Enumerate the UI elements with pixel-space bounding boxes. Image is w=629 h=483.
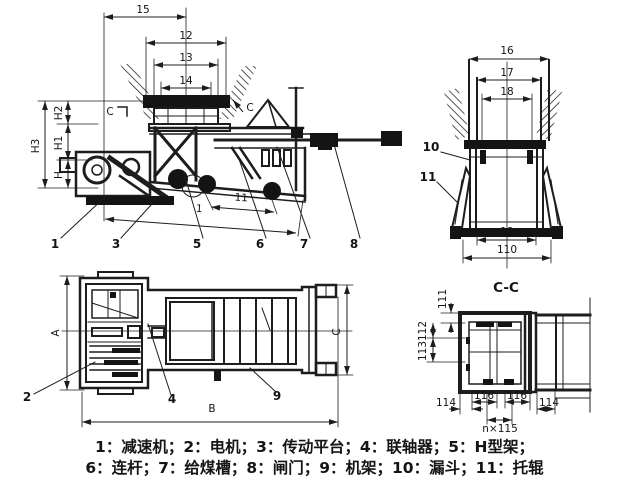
drawing-canvas: 15 12 13 14 xyxy=(0,0,629,483)
part-label-8: 8 xyxy=(350,237,358,251)
part-label-1: 1 xyxy=(51,237,59,251)
dim-label-18: 18 xyxy=(500,86,513,98)
part-label-11: 11 xyxy=(420,170,437,184)
part-label-6: 6 xyxy=(256,237,264,251)
roller xyxy=(263,182,281,200)
dim-label-113: 113 xyxy=(417,341,429,361)
roller xyxy=(198,175,216,193)
dim-label-111: 111 xyxy=(437,289,449,309)
dim-label-116-right: 116 xyxy=(507,390,527,402)
dim-line-11 xyxy=(211,207,274,212)
bunker-hatch-left xyxy=(444,88,470,140)
dim-label-19: 19 xyxy=(500,226,513,238)
bunker-hatch-right xyxy=(536,88,562,140)
dim-label-14: 14 xyxy=(179,75,193,87)
part-label-5: 5 xyxy=(193,237,201,251)
part-label-4: 4 xyxy=(168,392,176,406)
section-mark-right: C xyxy=(246,102,253,114)
dim-label-12: 12 xyxy=(179,30,192,42)
dim-label-110: 110 xyxy=(497,244,517,256)
part-label-2: 2 xyxy=(23,390,31,404)
dim-label-16: 16 xyxy=(500,45,514,57)
dim-label-114-right: 114 xyxy=(539,397,559,409)
drive-block xyxy=(86,284,142,382)
dim-label-H: H xyxy=(53,171,65,179)
section-view-cc: C-C 111 112 113 xyxy=(417,280,590,435)
dim-label-H1: H1 xyxy=(53,136,65,151)
dim-label-116-left: 116 xyxy=(474,390,494,402)
dim-label-l: 1 xyxy=(195,203,203,215)
support-leg-left xyxy=(452,168,470,228)
rod-end xyxy=(381,131,402,146)
dim-label-114-left: 114 xyxy=(436,397,456,409)
dim-label-15: 15 xyxy=(136,4,149,16)
section-title: C-C xyxy=(493,280,519,296)
coupling xyxy=(152,328,164,337)
dim-label-17: 17 xyxy=(500,67,513,79)
end-view: 16 17 18 19 110 xyxy=(420,45,563,268)
gearbox-base xyxy=(86,196,174,205)
legend-line-2: 6：连杆；7：给煤槽；8：闸门；9：机架；10：漏斗；11：托辊 xyxy=(0,458,629,479)
table-top-plate xyxy=(143,95,230,108)
part-label-7: 7 xyxy=(300,237,308,251)
dim-label-C: C xyxy=(331,328,343,335)
parts-legend: 1：减速机；2：电机；3：传动平台；4：联轴器；5：H型架； 6：连杆；7：给煤… xyxy=(0,437,629,478)
trough-plan xyxy=(166,287,309,373)
feeder-engineering-drawing: 15 12 13 14 xyxy=(0,0,629,483)
part-label-10: 10 xyxy=(423,140,440,154)
dim-label-13: 13 xyxy=(179,52,192,64)
dim-label-112: 112 xyxy=(417,321,429,341)
support-leg-right xyxy=(543,168,561,228)
hopper-flange xyxy=(464,140,546,149)
plan-view: A B C 2 4 9 xyxy=(23,272,353,427)
section-mark-left: C xyxy=(106,106,113,118)
part-label-9: 9 xyxy=(273,389,281,403)
dim-label-115: n×115 xyxy=(482,423,518,435)
dim-label-11: 11 xyxy=(234,192,248,205)
dim-label-A: A xyxy=(50,329,62,337)
dim-label-H2: H2 xyxy=(53,106,65,121)
roller xyxy=(168,169,188,189)
drive-shaft-circle xyxy=(84,157,110,183)
side-view: 15 12 13 14 xyxy=(30,4,402,251)
part-label-3: 3 xyxy=(112,237,120,251)
dim-label-H3: H3 xyxy=(30,139,42,154)
legend-line-1: 1：减速机；2：电机；3：传动平台；4：联轴器；5：H型架； xyxy=(0,437,629,458)
dim-label-B: B xyxy=(208,403,215,415)
